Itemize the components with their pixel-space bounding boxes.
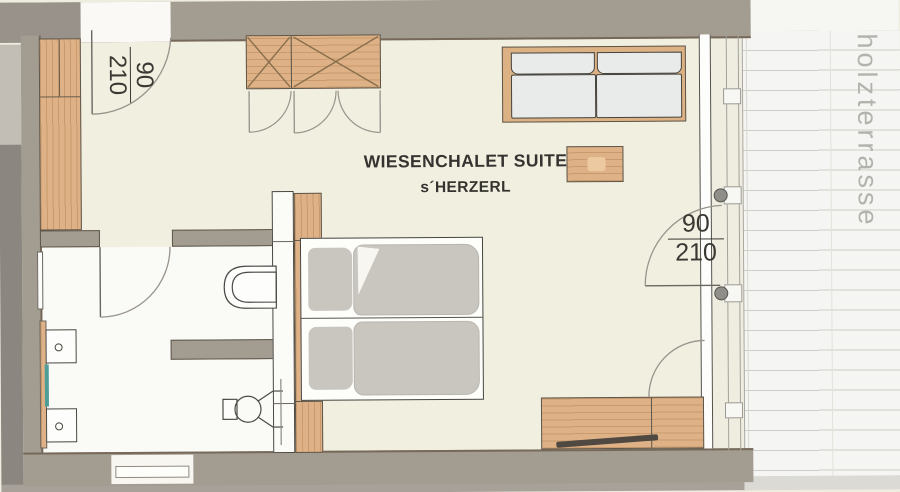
door-handle-knob <box>714 286 728 300</box>
suite-title-line2: s´HERZERL <box>346 178 586 197</box>
floorplan: holzterrasse <box>0 0 900 492</box>
window-jamb <box>725 402 743 418</box>
cabinet-x-brace-icon <box>247 36 291 88</box>
page-left-upper <box>0 45 21 145</box>
sink-drain-icon <box>55 343 63 351</box>
door-height-value: 210 <box>104 55 129 95</box>
door-width-value: 90 <box>682 211 710 237</box>
sink-drain-icon <box>55 422 63 430</box>
bathroom-wall-top-right <box>172 229 278 247</box>
sofa <box>502 46 686 123</box>
terrace-door-dimension: 90 210 <box>664 211 728 265</box>
floorplan-scan: holzterrasse <box>0 0 900 492</box>
door-width-value: 90 <box>131 61 156 88</box>
suite-title-line1: WIESENCHALET SUITE <box>345 150 585 172</box>
wardrobe-divider-line <box>59 39 60 96</box>
headboard-wall-post-bottom <box>295 401 323 453</box>
bed-pillow <box>308 248 352 311</box>
sofa-back-cushion <box>511 52 595 75</box>
page-top-right <box>750 0 898 34</box>
vanity-sink <box>46 329 77 363</box>
table-highlight <box>587 157 605 171</box>
terrace-label: holzterrasse <box>851 33 883 263</box>
window-jamb <box>723 88 741 104</box>
vanity-teal-accent <box>45 364 49 406</box>
wardrobe-shelf-line <box>40 96 80 97</box>
page-left-lower <box>0 145 24 492</box>
door-handle-knob <box>714 188 728 202</box>
vanity-sink <box>46 408 77 442</box>
entry-door-opening <box>81 2 171 43</box>
door-height-value: 210 <box>675 240 717 266</box>
suite-title: WIESENCHALET SUITE s´HERZERL <box>345 150 585 197</box>
bathroom-mirror <box>37 251 43 309</box>
bathroom-shelf-divider <box>272 241 294 242</box>
bed-duvet <box>353 321 479 396</box>
bed <box>300 237 484 401</box>
wall-cabinet-left <box>246 35 292 89</box>
sofa-back-cushion <box>597 52 682 75</box>
bathroom-window <box>115 466 189 478</box>
terrace-bottom-band <box>744 475 900 490</box>
bathroom-wall-top-left <box>40 230 100 247</box>
wall-cabinet-right <box>291 34 381 89</box>
entry-wardrobe <box>39 38 82 230</box>
sofa-seat-cushion <box>596 74 682 119</box>
bathroom-shelf-column <box>272 191 296 453</box>
sideboard <box>541 396 704 449</box>
bed-center-line <box>301 317 482 319</box>
bed-pillow <box>308 327 352 390</box>
sofa-seat-cushion <box>511 74 596 119</box>
cabinet-x-brace-icon <box>292 35 380 88</box>
bathroom-partition-low <box>171 339 279 360</box>
entry-door-dimension: 90 210 <box>104 39 156 111</box>
headboard-wall-post-top <box>294 193 322 241</box>
bench-ski-bar <box>556 434 658 448</box>
bathroom-shelf-divider <box>273 403 295 404</box>
